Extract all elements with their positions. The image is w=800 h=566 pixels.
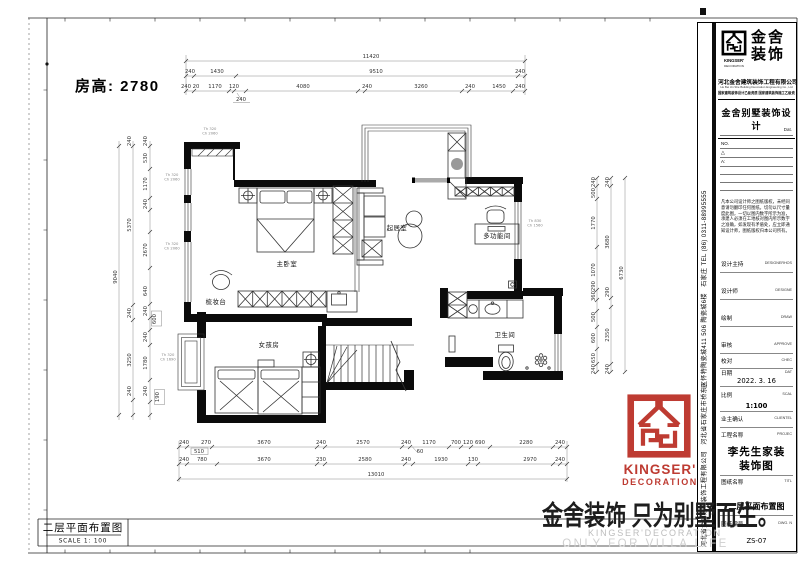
dimension-lines	[119, 55, 625, 482]
dimension-label: 240	[555, 440, 566, 446]
dimension-label: 4080	[296, 84, 310, 90]
dimension-label: 230	[316, 457, 327, 463]
field-draw: 绘制 DRAW	[720, 314, 793, 327]
room-label: 女孩房	[259, 340, 280, 349]
dimension-label: 240	[591, 363, 597, 374]
dimension-label: 3670	[257, 440, 271, 446]
window-tag: Th 320Ch 2060	[164, 242, 180, 250]
dimension-label: 510	[194, 449, 205, 455]
brand-cn-line2: 装饰	[751, 43, 785, 64]
dimension-label: 240	[179, 457, 190, 463]
field-project: 工程名称 PROJEC 李先生家装 装饰图	[720, 431, 793, 476]
room-label: 多功能间	[483, 231, 511, 240]
dimension-labels: 2402703670240257024011707001206902280240…	[179, 440, 566, 478]
company-cert-line: 国家建筑装饰设计乙级资质 国家建筑装饰施工乙级资质	[718, 90, 795, 95]
dimension-label: 500	[591, 187, 597, 198]
drawing-sheet: 1142024014309510240240201170120408024032…	[0, 0, 800, 566]
dimension-label: 240	[362, 84, 373, 90]
dimension-label: 2670	[143, 243, 149, 257]
project-name-line2: 装饰图	[720, 458, 793, 473]
scale-box-scale: SCALE 1: 100	[59, 539, 108, 545]
dimension-label: 240	[143, 331, 149, 342]
project-name-line1: 李先生家装	[720, 444, 793, 459]
scale-value: 1:100	[720, 402, 793, 410]
dimension-label: 240	[401, 457, 412, 463]
field-designer: 设计师 DESIGNE	[720, 287, 793, 300]
brand-en-line2: DECORATION	[718, 64, 750, 68]
dimension-label: 500	[591, 311, 597, 322]
company-name-en: He Bei Jin She Building Decoration Engin…	[718, 85, 795, 89]
dimension-label: 190	[155, 391, 161, 402]
revision-triangle: △	[721, 150, 725, 156]
room-label: 梳妆台	[206, 297, 227, 306]
revision-no-label: NO.	[721, 141, 729, 146]
room-label: 卫生间	[495, 330, 516, 339]
field-check: 校对 CHEC	[720, 357, 793, 369]
dimension-label: 690	[475, 440, 486, 446]
dimension-label: 5370	[127, 218, 133, 232]
shower-icon	[535, 354, 547, 367]
date-value: 2022. 3. 16	[720, 377, 793, 385]
dimension-label: 600	[152, 313, 158, 324]
dimension-label: 240	[127, 307, 133, 318]
dimension-label: 240	[316, 440, 327, 446]
dimension-label: 240	[143, 305, 149, 316]
dimension-label: 240	[515, 84, 526, 90]
dimension-label: 1450	[492, 84, 506, 90]
dimension-label: 2350	[605, 328, 611, 342]
watermark-tagline-en: ONLY FOR VILLA LIFE	[543, 538, 748, 550]
dimension-label: 270	[201, 440, 212, 446]
scale-box-title: 二层平面布置图	[43, 522, 124, 534]
dimension-label: 13010	[368, 472, 385, 478]
dimension-label: 3670	[257, 457, 271, 463]
dimension-label: 240	[127, 135, 133, 146]
stamp-brand-sub: DECORATION	[615, 477, 705, 487]
window-tag: Th 320Ch 2060	[164, 173, 180, 181]
dimension-label: 600	[591, 332, 597, 343]
dimension-label: 1170	[422, 440, 436, 446]
dimension-label: 130	[468, 457, 479, 463]
dimension-label: 1430	[210, 69, 224, 75]
registered-mark: ®	[701, 382, 707, 391]
dimension-label: 1170	[143, 177, 149, 191]
dimension-label: 3260	[414, 84, 428, 90]
dimension-label: 11420	[363, 54, 380, 60]
dimension-label: 1070	[591, 263, 597, 277]
revision-a-label: A:	[721, 159, 725, 164]
window-tag: Th 320Ch 2060	[202, 127, 218, 135]
dimension-label: 240	[179, 440, 190, 446]
date-label: Dat.	[784, 127, 792, 132]
kingser-emblem-icon	[721, 30, 747, 56]
dimension-label: 780	[197, 457, 208, 463]
field-approve: 审核 APPROVE	[720, 341, 793, 354]
dimension-label: 240	[605, 363, 611, 374]
field-client-confirm: 业主确认 CLIENTEL	[720, 415, 793, 428]
title-block: 河北省金舍建筑装饰工程有限公司 河北省石家庄市桥东区怀特陶瓷城411 506 陶…	[697, 22, 797, 552]
dimension-label: 240	[181, 84, 192, 90]
dimension-label: 3250	[127, 353, 133, 367]
stamp-brand-name: KINGSER'	[615, 462, 705, 477]
dimension-label: 2280	[519, 440, 533, 446]
dimension-label: 240	[591, 176, 597, 187]
dimension-label: 240	[465, 84, 476, 90]
dimension-labels: 1142024014309510240240201170120408024032…	[181, 54, 526, 103]
dimension-label: 3680	[605, 235, 611, 249]
disclaimer-text: 凡本公司设计师之图纸版权，未经同意请勿翻印任何图纸。切勿以尺寸量度此图，一切以图…	[721, 199, 792, 234]
windows	[178, 125, 561, 390]
dimension-label: 120	[463, 440, 474, 446]
room-label: 起居室	[387, 223, 408, 232]
dimension-label: 20	[193, 84, 200, 90]
dimension-label: 240	[143, 198, 149, 209]
room-height-label: 房高: 2780	[75, 77, 160, 95]
dimension-label: 2970	[523, 457, 537, 463]
dimension-labels: 2405301170240267064024060024017802401902…	[113, 135, 161, 402]
title-block-divider-bar	[712, 23, 717, 551]
window-tag: Th 830Ch 1560	[527, 219, 543, 227]
dimension-label: 240	[143, 135, 149, 146]
dimension-label: 1930	[434, 457, 448, 463]
dimension-label: 650	[591, 352, 597, 363]
dimension-label: 240	[401, 440, 412, 446]
dimension-label: 290	[591, 280, 597, 291]
kingser-emblem-red-icon	[626, 393, 692, 459]
field-designer-host: 设计主持 DESIGNERHOS	[720, 260, 793, 273]
product-title: 金舍别墅装饰设计	[718, 99, 795, 139]
dimension-label: 240	[143, 385, 149, 396]
dimension-label: 9510	[369, 69, 383, 75]
brand-en-line1: KINGSER'	[718, 58, 750, 63]
dimension-label: 60	[417, 449, 424, 455]
dimension-label: 6730	[619, 266, 625, 280]
dimension-label: 290	[605, 286, 611, 297]
dimension-label: 640	[143, 285, 149, 296]
dimension-label: 1770	[591, 216, 597, 230]
dimension-label: 240	[515, 69, 526, 75]
dimension-label: 700	[451, 440, 462, 446]
room-labels: 主卧室起居室多功能间卫生间女孩房梳妆台	[206, 223, 516, 349]
dimension-label: 360	[591, 290, 597, 301]
walls	[184, 142, 563, 423]
dimension-label: 240	[127, 385, 133, 396]
dimension-label: 240	[185, 69, 196, 75]
dimension-label: 530	[143, 152, 149, 163]
watermark-brand-en: KINGSER'DECORATION	[555, 528, 755, 538]
dimension-label: 240	[236, 97, 247, 103]
dimension-label: 1780	[143, 356, 149, 370]
dimension-label: 240	[555, 457, 566, 463]
kingser-stamp: ® KINGSER' DECORATION	[615, 380, 705, 498]
field-scale: 比例 SCAL 1:100	[720, 391, 793, 412]
dimension-label: 1170	[208, 84, 222, 90]
room-label: 主卧室	[277, 259, 298, 268]
field-date: 日期 DAT 2022. 3. 16	[720, 369, 793, 387]
window-tag: Th 320Ch 1690	[160, 353, 176, 361]
dimension-label: 2580	[358, 457, 372, 463]
dimension-labels: 2405001770107029036050060065024024036802…	[591, 176, 625, 374]
dimension-label: 240	[605, 176, 611, 187]
dimension-label: 120	[229, 84, 240, 90]
dimension-ticks	[117, 59, 627, 481]
dimension-label: 2570	[356, 440, 370, 446]
dimension-label: 9040	[113, 270, 119, 284]
